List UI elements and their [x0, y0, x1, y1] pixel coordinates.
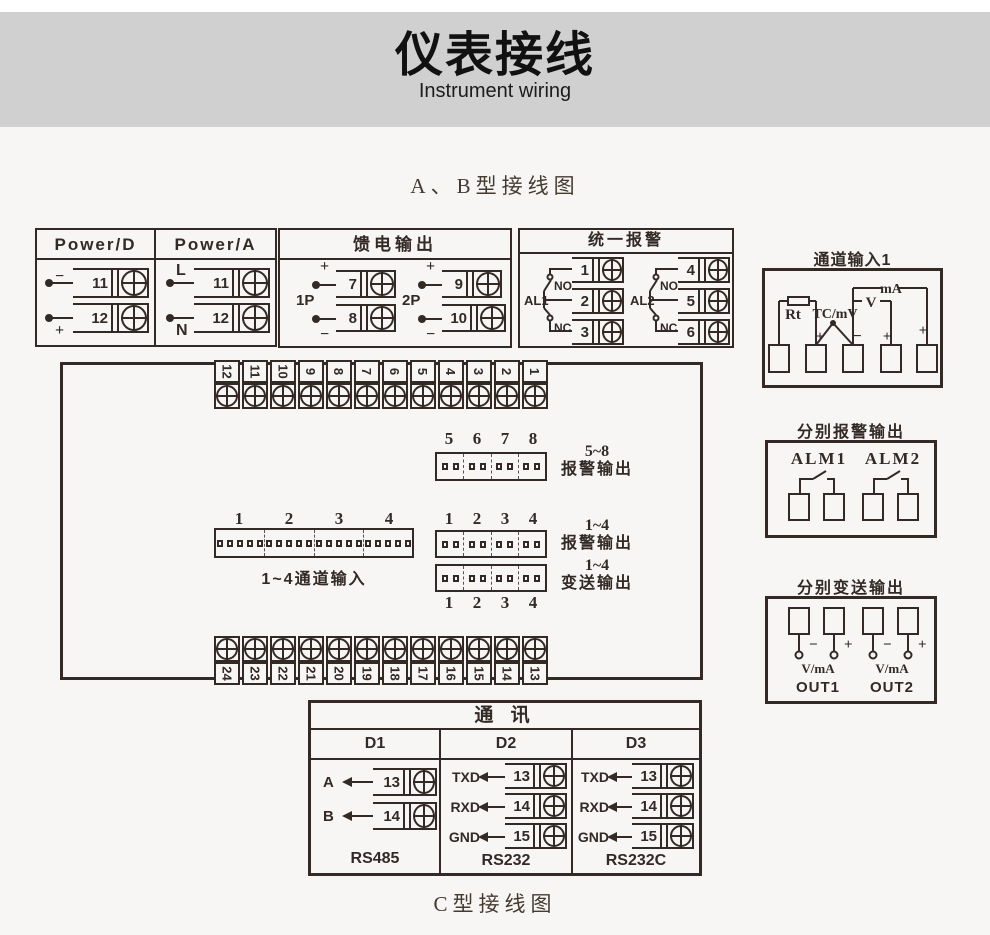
terminal-number: 5 [410, 360, 436, 383]
arrow-left-icon [347, 781, 373, 783]
vma-label: V/mA [856, 661, 928, 677]
terminal-9: 9 [442, 270, 502, 298]
minus-sign: − [809, 637, 818, 653]
pin-number: 3 [314, 509, 364, 529]
pin-square [523, 541, 529, 548]
feed-group-1p: 1P + 7 − 8 [296, 264, 400, 348]
terminal-cell: 21 [298, 636, 324, 685]
pin-square [326, 540, 332, 547]
terminal-cell: 7 [354, 360, 380, 409]
wire [47, 282, 73, 284]
screw-icon [410, 636, 436, 662]
comm-terminal-13: 13 [373, 768, 437, 796]
trans14-connector [435, 564, 547, 592]
pin-square [453, 575, 459, 582]
screw-icon [522, 636, 548, 662]
terminal-box [862, 607, 884, 635]
section-label-ab: A、B型接线图 [0, 170, 990, 200]
screw-terminal [232, 303, 270, 333]
screw-terminal [111, 268, 149, 298]
channel14-connector [214, 528, 414, 558]
protocol-label: RS232 [441, 852, 571, 870]
screw-icon [370, 306, 394, 330]
screw-icon [270, 636, 296, 662]
screw-terminal [660, 793, 694, 819]
terminal-number: 4 [438, 360, 464, 383]
screw-terminal [592, 288, 624, 314]
pin-group [492, 454, 519, 479]
screw-icon [708, 290, 728, 312]
terminal-5: 5 [678, 288, 730, 314]
pin-number: 6 [463, 429, 491, 449]
pin-group [519, 566, 545, 590]
pin-square [507, 541, 513, 548]
pin-square [257, 540, 263, 547]
pin-square [469, 463, 475, 470]
power-headers: Power/D Power/A [37, 230, 275, 260]
terminal-number: 5 [678, 288, 698, 314]
terminal-number: 14 [632, 793, 660, 819]
screw-icon [708, 321, 728, 343]
screw-icon [543, 765, 565, 787]
terminal-box [881, 345, 901, 372]
terminal-cell: 11 [242, 360, 268, 409]
signal-label: A [323, 774, 334, 791]
screw-icon [543, 795, 565, 817]
comm-col-d1: A 13 B 14 RS485 [311, 760, 441, 873]
terminal-cell: 12 [214, 360, 240, 409]
terminal-1: 1 [572, 257, 624, 283]
pin-number: 4 [519, 593, 547, 613]
screw-icon [354, 383, 380, 409]
pin-square [296, 540, 302, 547]
pin-group [437, 454, 464, 479]
terminal-number: 16 [438, 662, 464, 685]
terminal-number: 22 [270, 662, 296, 685]
section-label-c: C型接线图 [0, 888, 990, 918]
terminal-number: 7 [354, 360, 380, 383]
comm-terminal-14: 14 [505, 793, 567, 819]
terminal-strip-bottom: 24 23 22 21 20 19 18 17 16 15 [214, 636, 550, 685]
pin-group [364, 530, 412, 556]
alarm-group-name: AL2 [630, 293, 655, 308]
screw-icon [670, 795, 692, 817]
terminal-box [897, 493, 919, 521]
pin-square [496, 575, 502, 582]
terminal-cell: 24 [214, 636, 240, 685]
pin-group [464, 532, 491, 556]
pin-square [442, 463, 448, 470]
pin-number: 5 [435, 429, 463, 449]
pin-group [519, 532, 545, 556]
pin-square [385, 540, 391, 547]
pin-square [365, 540, 371, 547]
pin-square [453, 541, 459, 548]
terminal-box [788, 607, 810, 635]
terminal-number: 9 [442, 270, 466, 298]
range: 1~4 [551, 557, 643, 575]
terminal-number: 11 [242, 360, 268, 383]
terminal-cell: 3 [466, 360, 492, 409]
terminal-number: 12 [194, 303, 232, 333]
pin-square [405, 540, 411, 547]
terminal-number: 18 [382, 662, 408, 685]
power-d-header: Power/D [37, 230, 156, 258]
screw-icon [543, 825, 565, 847]
pin-number: 3 [491, 593, 519, 613]
alarm14-label: 1~4 报警输出 [551, 517, 643, 553]
wire [168, 317, 194, 319]
terminal-12: 12 [73, 303, 149, 333]
nc-label: NC [660, 321, 678, 335]
pin-square [496, 541, 502, 548]
terminal-strip-top: 12 11 10 9 8 7 6 5 4 3 [214, 360, 550, 409]
screw-icon [382, 636, 408, 662]
screw-icon [670, 765, 692, 787]
screw-terminal [698, 319, 730, 345]
pin-square [534, 575, 540, 582]
terminal-number: 1 [572, 257, 592, 283]
plus-sign: + [816, 329, 825, 345]
alm2-label: ALM2 [855, 449, 931, 469]
switch-icon [872, 469, 910, 493]
pin-square [480, 575, 486, 582]
screw-icon [242, 270, 268, 296]
pin-square [286, 540, 292, 547]
pin-number: 1 [435, 509, 463, 529]
comm-col-d3: TXD 13 RXD 14 GND 15 RS232C [573, 760, 699, 873]
pin-square [237, 540, 243, 547]
alarm14-connector [435, 530, 547, 558]
pin-number: 4 [364, 509, 414, 529]
pin-number: 8 [519, 429, 547, 449]
alarm58-pin-numbers: 5678 [435, 429, 547, 449]
terminal-number: 15 [632, 823, 660, 849]
power-a-header: Power/A [156, 230, 275, 258]
terminal-box [769, 345, 789, 372]
terminal-cell: 4 [438, 360, 464, 409]
pin-square [356, 540, 362, 547]
terminal-cell: 19 [354, 636, 380, 685]
terminal-number: 7 [336, 270, 360, 298]
top-margin [0, 0, 990, 12]
wire [420, 284, 442, 286]
screw-terminal [660, 823, 694, 849]
pin-square [507, 575, 513, 582]
comm-col-d3-header: D3 [573, 730, 699, 760]
pin-square [523, 575, 529, 582]
terminal-4: 4 [678, 257, 730, 283]
power-d-plus-label: + [55, 322, 64, 340]
channel-input-wiring: Rt TC/mV V mA + − + + [765, 271, 940, 385]
arrow-left-icon [612, 776, 632, 778]
comm-terminal-15: 15 [505, 823, 567, 849]
screw-icon [214, 383, 240, 409]
pin-group [519, 454, 545, 479]
terminal-cell: 23 [242, 636, 268, 685]
terminal-number: 21 [298, 662, 324, 685]
pin-number: 2 [463, 509, 491, 529]
relay-switch-icon: AL2 NO NC [630, 257, 678, 347]
terminal-number: 11 [73, 268, 111, 298]
screw-icon [413, 770, 435, 794]
screw-icon [370, 272, 394, 296]
terminal-10: 10 [442, 304, 506, 332]
sep-trans-block: − + − + V/mA V/mA OUT1 OUT2 [765, 596, 937, 704]
terminal-number: 2 [494, 360, 520, 383]
tc-mv-label: TC/mV [812, 307, 857, 322]
terminal-number: 3 [466, 360, 492, 383]
page-subtitle: Instrument wiring [0, 80, 990, 102]
terminal-number: 6 [678, 319, 698, 345]
screw-terminal [360, 304, 396, 332]
screw-icon [670, 825, 692, 847]
pin-square [480, 541, 486, 548]
range: 5~8 [551, 443, 643, 461]
plus-sign: + [320, 258, 329, 276]
terminal-number: 13 [632, 763, 660, 789]
page-title: 仪表接线 [0, 30, 990, 82]
screw-icon [466, 636, 492, 662]
terminal-cell: 17 [410, 636, 436, 685]
terminal-cell: 2 [494, 360, 520, 409]
unified-alarm-block: 统一报警 AL1 NO NC 1 2 3 [518, 228, 734, 348]
arrow-left-icon [612, 836, 632, 838]
screw-icon [298, 383, 324, 409]
comm-col-d1-header: D1 [311, 730, 441, 760]
pin-number: 4 [519, 509, 547, 529]
screw-terminal [111, 303, 149, 333]
screw-icon [298, 636, 324, 662]
group-name: 1P [296, 292, 314, 309]
channel-input-title: 通道输入1 [762, 246, 943, 270]
terminal-number: 1 [522, 360, 548, 383]
screw-terminal [698, 257, 730, 283]
alarm58-label: 5~8 报警输出 [551, 443, 643, 479]
screw-icon [242, 636, 268, 662]
terminal-number: 8 [336, 304, 360, 332]
terminal-number: 14 [505, 793, 533, 819]
plus-sign: + [426, 258, 435, 276]
screw-icon [410, 383, 436, 409]
pin-square [217, 540, 223, 547]
comm-terminal-14: 14 [632, 793, 694, 819]
minus-sign: − [883, 637, 892, 653]
pin-group [437, 566, 464, 590]
terminal-number: 13 [522, 662, 548, 685]
pin-square [346, 540, 352, 547]
screw-icon [494, 636, 520, 662]
output-wires: − + − + [768, 635, 934, 663]
screw-terminal [660, 763, 694, 789]
comm-terminal-15: 15 [632, 823, 694, 849]
terminal-box [823, 493, 845, 521]
terminal-box [897, 607, 919, 635]
terminal-number: 10 [442, 304, 470, 332]
power-a-column: L 11 N 12 [158, 260, 277, 347]
screw-icon [602, 290, 622, 312]
sep-alarm-block: ALM1 ALM2 [765, 440, 937, 538]
terminal-cell: 5 [410, 360, 436, 409]
pin-group [464, 566, 491, 590]
v-label: V [866, 295, 877, 311]
pin-square [469, 575, 475, 582]
pin-group [315, 530, 364, 556]
pin-number: 2 [463, 593, 491, 613]
screw-terminal [403, 802, 437, 830]
pin-square [507, 463, 513, 470]
power-a-l-label: L [176, 262, 186, 280]
arrow-left-icon [483, 806, 505, 808]
main-wiring-block: 12 11 10 9 8 7 6 5 4 3 [60, 362, 703, 680]
terminal-cell: 15 [466, 636, 492, 685]
unified-alarm-title: 统一报警 [520, 230, 732, 254]
screw-terminal [592, 319, 624, 345]
pin-square [442, 541, 448, 548]
pin-group [437, 532, 464, 556]
terminal-number: 19 [354, 662, 380, 685]
screw-terminal [533, 763, 567, 789]
no-label: NO [660, 279, 678, 293]
terminal-cell: 18 [382, 636, 408, 685]
alarm58-connector [435, 452, 547, 481]
power-d-column: − 11 + 12 [37, 260, 156, 347]
pin-number: 1 [214, 509, 264, 529]
terminal-cell: 8 [326, 360, 352, 409]
feed-output-title: 馈电输出 [280, 230, 510, 260]
rt-label: Rt [785, 307, 801, 323]
ma-label: mA [880, 282, 903, 297]
terminal-number: 3 [572, 319, 592, 345]
pin-group [216, 530, 265, 556]
screw-terminal [466, 270, 502, 298]
pin-square [534, 463, 540, 470]
pin-group [492, 532, 519, 556]
terminal-number: 9 [298, 360, 324, 383]
header-band: 仪表接线 Instrument wiring [0, 12, 990, 127]
pin-square [534, 541, 540, 548]
pin-number: 2 [264, 509, 314, 529]
pin-square [442, 575, 448, 582]
alm1-label: ALM1 [781, 449, 857, 469]
pin-square [480, 463, 486, 470]
minus-sign: − [852, 328, 861, 345]
power-block: Power/D Power/A − 11 + 12 L 11 N 12 [35, 228, 277, 347]
terminal-2: 2 [572, 288, 624, 314]
terminal-number: 14 [373, 802, 403, 830]
switch-icon [798, 469, 836, 493]
signal-label: B [323, 808, 334, 825]
screw-icon [270, 383, 296, 409]
pin-square [276, 540, 282, 547]
screw-terminal [533, 793, 567, 819]
out1-label: OUT1 [782, 679, 854, 696]
screw-icon [522, 383, 548, 409]
pin-square [336, 540, 342, 547]
terminal-box [917, 345, 937, 372]
arrow-left-icon [347, 815, 373, 817]
channel14-pin-numbers: 1234 [214, 509, 414, 529]
channel-input-block: Rt TC/mV V mA + − + + [762, 268, 943, 388]
feed-group-2p: 2P + 9 − 10 [402, 264, 506, 348]
terminal-7: 7 [336, 270, 396, 298]
screw-terminal [360, 270, 396, 298]
screw-terminal [470, 304, 506, 332]
relay-switch-icon: AL1 NO NC [524, 257, 572, 347]
terminal-cell: 9 [298, 360, 324, 409]
screw-icon [438, 383, 464, 409]
alarm14-pin-numbers: 1234 [435, 509, 547, 529]
pin-square [496, 463, 502, 470]
screw-icon [466, 383, 492, 409]
terminal-3: 3 [572, 319, 624, 345]
alarm-group-al1: AL1 NO NC 1 2 3 [524, 257, 626, 347]
terminal-box [862, 493, 884, 521]
plus-sign: + [918, 637, 927, 653]
screw-icon [438, 636, 464, 662]
label: 变送输出 [551, 575, 643, 593]
terminal-cell: 14 [494, 636, 520, 685]
terminal-number: 6 [382, 360, 408, 383]
terminal-12: 12 [194, 303, 270, 333]
terminal-cell: 6 [382, 360, 408, 409]
arrow-left-icon [483, 776, 505, 778]
wire [420, 318, 442, 320]
pin-square [375, 540, 381, 547]
terminal-number: 15 [505, 823, 533, 849]
pin-square [395, 540, 401, 547]
screw-icon [326, 636, 352, 662]
minus-sign: − [320, 326, 329, 344]
terminal-box [806, 345, 826, 372]
screw-icon [413, 804, 435, 828]
screw-icon [476, 272, 500, 296]
protocol-label: RS485 [311, 850, 439, 868]
pin-square [453, 463, 459, 470]
screw-icon [480, 306, 504, 330]
alarm-group-name: AL1 [524, 293, 549, 308]
screw-icon [382, 383, 408, 409]
terminal-number: 17 [410, 662, 436, 685]
plus-sign: + [883, 329, 892, 345]
terminal-number: 23 [242, 662, 268, 685]
wire [314, 318, 336, 320]
terminal-box [788, 493, 810, 521]
trans14-label: 1~4 变送输出 [551, 557, 643, 593]
out2-label: OUT2 [856, 679, 928, 696]
channel14-label: 1~4通道输入 [214, 565, 414, 589]
comm-block: 通 讯 D1 D2 D3 A 13 B 14 RS485 TXD 13 RXD … [308, 700, 702, 876]
pin-square [469, 541, 475, 548]
feed-output-block: 馈电输出 1P + 7 − 8 2P + 9 − 10 [278, 228, 512, 348]
terminal-number: 10 [270, 360, 296, 383]
screw-terminal [592, 257, 624, 283]
label: 报警输出 [551, 535, 643, 553]
screw-icon [494, 383, 520, 409]
terminal-number: 24 [214, 662, 240, 685]
pin-square [523, 463, 529, 470]
terminal-cell: 13 [522, 636, 548, 685]
terminal-number: 14 [494, 662, 520, 685]
terminal-cell: 10 [270, 360, 296, 409]
terminal-cell: 1 [522, 360, 548, 409]
label: 报警输出 [551, 461, 643, 479]
screw-icon [121, 305, 147, 331]
pin-group [492, 566, 519, 590]
terminal-cell: 20 [326, 636, 352, 685]
pin-group [265, 530, 314, 556]
arrow-left-icon [483, 836, 505, 838]
